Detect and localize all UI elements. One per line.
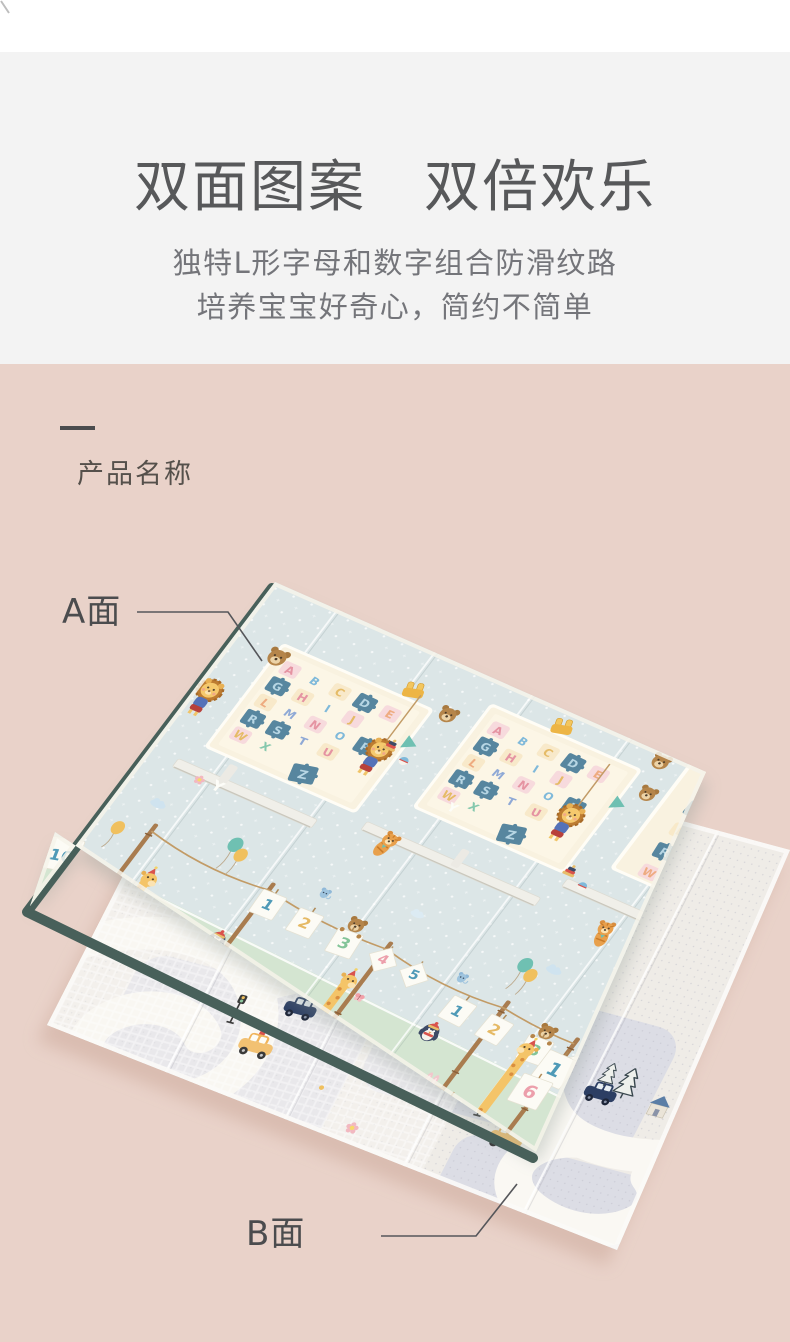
product-section: 产品名称 ABCDEGHIJLMNOPRSTUWXZABCDEGHIJLMNOP… [0, 364, 790, 1342]
header-band: 双面图案 双倍欢乐 独特L形字母和数字组合防滑纹路 培养宝宝好奇心，简约不简单 [0, 52, 790, 364]
subtitle-line-2: 培养宝宝好奇心，简约不简单 [0, 284, 790, 326]
product-illustration: ABCDEGHIJLMNOPRSTUWXZABCDEGHIJLMNOPRSTUW… [0, 364, 790, 1342]
side-a-label: A面 [62, 584, 121, 633]
cloud-icon [708, 1088, 741, 1110]
side-b-label: B面 [246, 1206, 305, 1255]
page-title: 双面图案 双倍欢乐 [0, 142, 790, 223]
corner-artifact [0, 0, 12, 14]
subtitle-line-1: 独特L形字母和数字组合防滑纹路 [0, 240, 790, 282]
top-white-band [0, 0, 790, 52]
